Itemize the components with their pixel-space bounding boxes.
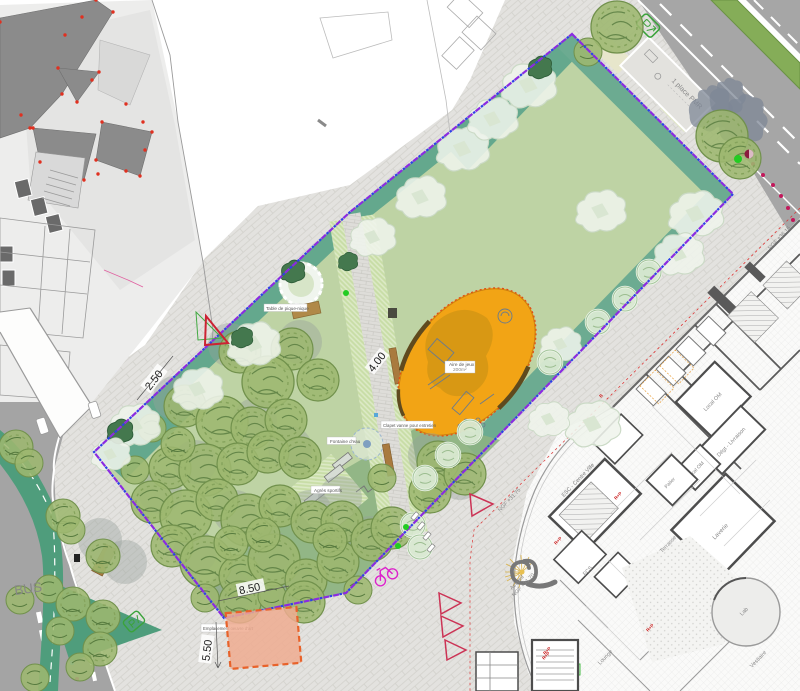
svg-text:200m²: 200m² <box>453 367 467 373</box>
svg-text:Fontaine d'eau: Fontaine d'eau <box>330 439 361 444</box>
svg-text:Table de pique-nique: Table de pique-nique <box>266 306 309 311</box>
svg-text:Clapet vanne pour entretien: Clapet vanne pour entretien <box>383 423 437 428</box>
svg-text:Agrès sportifs: Agrès sportifs <box>314 488 343 493</box>
